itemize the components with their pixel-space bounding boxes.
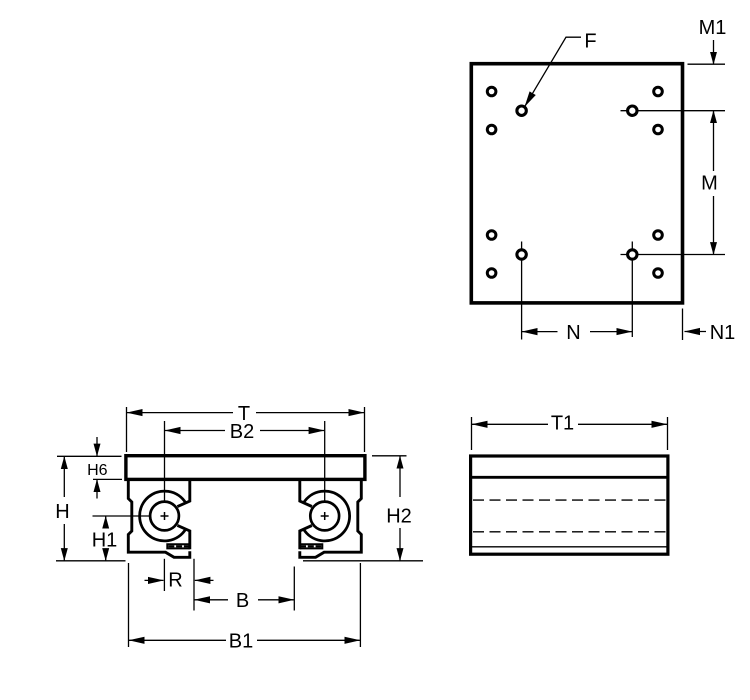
svg-text:M: M <box>701 172 718 194</box>
svg-text:B2: B2 <box>230 421 254 443</box>
svg-text:H2: H2 <box>386 505 412 527</box>
svg-text:H: H <box>55 501 69 523</box>
svg-text:H6: H6 <box>87 462 108 479</box>
svg-text:N: N <box>566 322 580 344</box>
svg-text:B: B <box>236 590 249 612</box>
svg-text:M1: M1 <box>699 17 727 39</box>
svg-text:H1: H1 <box>92 529 118 551</box>
svg-text:F: F <box>584 30 596 52</box>
svg-text:R: R <box>168 569 182 591</box>
svg-text:N1: N1 <box>710 322 736 344</box>
svg-text:T1: T1 <box>551 413 574 435</box>
svg-text:B1: B1 <box>229 630 253 652</box>
